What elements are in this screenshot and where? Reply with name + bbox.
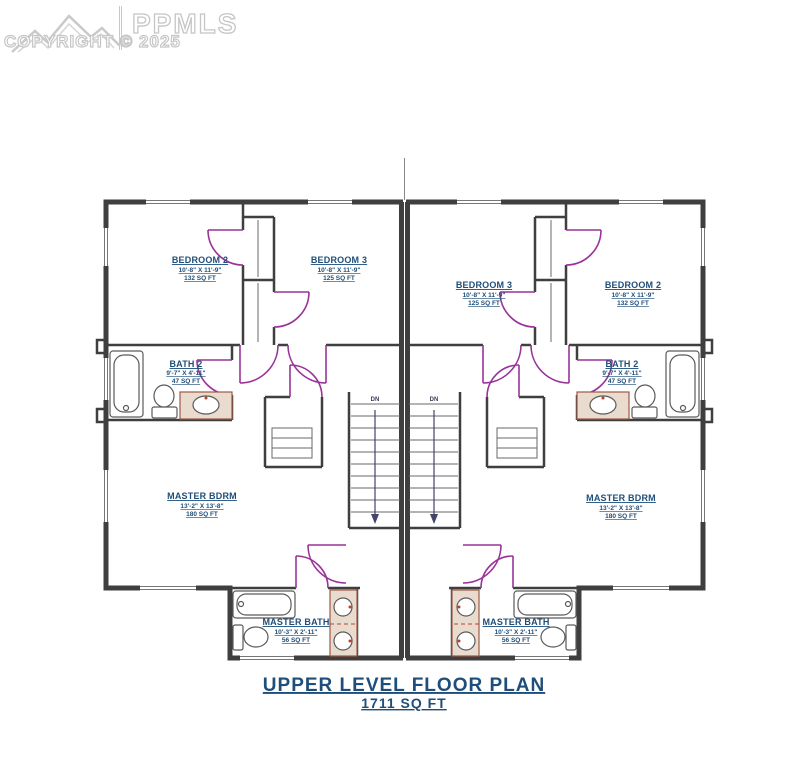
room-label-right-master-name: MASTER BDRM <box>586 493 656 503</box>
room-label-left-bedroom2-dims: 10'-8" X 11'-9" <box>179 267 222 274</box>
room-label-right-bedroom2-area: 132 SQ FT <box>617 300 649 307</box>
room-label-left-masterbath-name: MASTER BATH <box>262 617 329 627</box>
plan-title: UPPER LEVEL FLOOR PLAN <box>263 675 545 696</box>
floor-plan-canvas: BEDROOM 2 10'-8" X 11'-9" 132 SQ FT BEDR… <box>0 0 809 768</box>
watermark-copyright: COPYRIGHT © 2025 <box>4 32 181 52</box>
room-label-right-bedroom2-dims: 10'-8" X 11'-9" <box>612 292 655 299</box>
room-label-left-master-name: MASTER BDRM <box>167 491 237 501</box>
room-label-right-master-area: 180 SQ FT <box>605 513 637 520</box>
room-label-right-bath2-dims: 9'-7" X 4'-11" <box>602 370 641 377</box>
toilet-icon <box>152 407 177 418</box>
room-label-left-masterbath-area: 56 SQ FT <box>282 637 310 644</box>
unit-structure-mirrored <box>406 200 712 661</box>
room-label-right-master-dims: 13'-2" X 13'-8" <box>599 505 642 512</box>
room-label-right-bedroom3-area: 125 SQ FT <box>468 300 500 307</box>
plan-total-area: 1711 SQ FT <box>361 695 446 711</box>
room-label-right-masterbath-area: 56 SQ FT <box>502 637 530 644</box>
room-label-left-master-area: 180 SQ FT <box>186 511 218 518</box>
room-label-left-bedroom3-name: BEDROOM 3 <box>311 255 367 265</box>
stair-dn-label-right: DN <box>430 397 439 403</box>
room-label-right-bedroom3-dims: 10'-8" X 11'-9" <box>463 292 506 299</box>
room-label-left-bath2-dims: 9'-7" X 4'-11" <box>166 370 205 377</box>
room-label-right-bedroom3-name: BEDROOM 3 <box>456 280 512 290</box>
room-label-left-bedroom2-name: BEDROOM 2 <box>172 255 228 265</box>
watermark: PPMLS COPYRIGHT © 2025 <box>0 0 320 70</box>
walkin-closet <box>265 397 322 467</box>
closet-walls <box>243 202 274 345</box>
room-label-left-master-dims: 13'-2" X 13'-8" <box>180 503 223 510</box>
room-label-left-bedroom2-area: 132 SQ FT <box>184 275 216 282</box>
room-label-right-bath2-area: 47 SQ FT <box>608 378 636 385</box>
stairs <box>349 392 403 528</box>
room-label-right-bedroom2-name: BEDROOM 2 <box>605 280 661 290</box>
plan-title-block: UPPER LEVEL FLOOR PLAN 1711 SQ FT <box>263 675 545 711</box>
room-label-right-masterbath-name: MASTER BATH <box>482 617 549 627</box>
room-label-right-bath2-name: BATH 2 <box>605 359 638 369</box>
room-label-left-bath2-area: 47 SQ FT <box>172 378 200 385</box>
room-label-left-bath2-name: BATH 2 <box>169 359 202 369</box>
room-label-left-masterbath-dims: 10'-3" X 2'-11" <box>275 629 318 636</box>
stair-arrowhead <box>371 514 379 524</box>
room-label-left-bedroom3-dims: 10'-8" X 11'-9" <box>318 267 361 274</box>
floor-plan-page: { "watermark": { "brand": "PPMLS", "copy… <box>0 0 809 768</box>
room-label-left-bedroom3-area: 125 SQ FT <box>323 275 355 282</box>
stair-dn-label-left: DN <box>371 397 380 403</box>
toilet-icon <box>233 625 243 650</box>
room-label-right-masterbath-dims: 10'-3" X 2'-11" <box>495 629 538 636</box>
